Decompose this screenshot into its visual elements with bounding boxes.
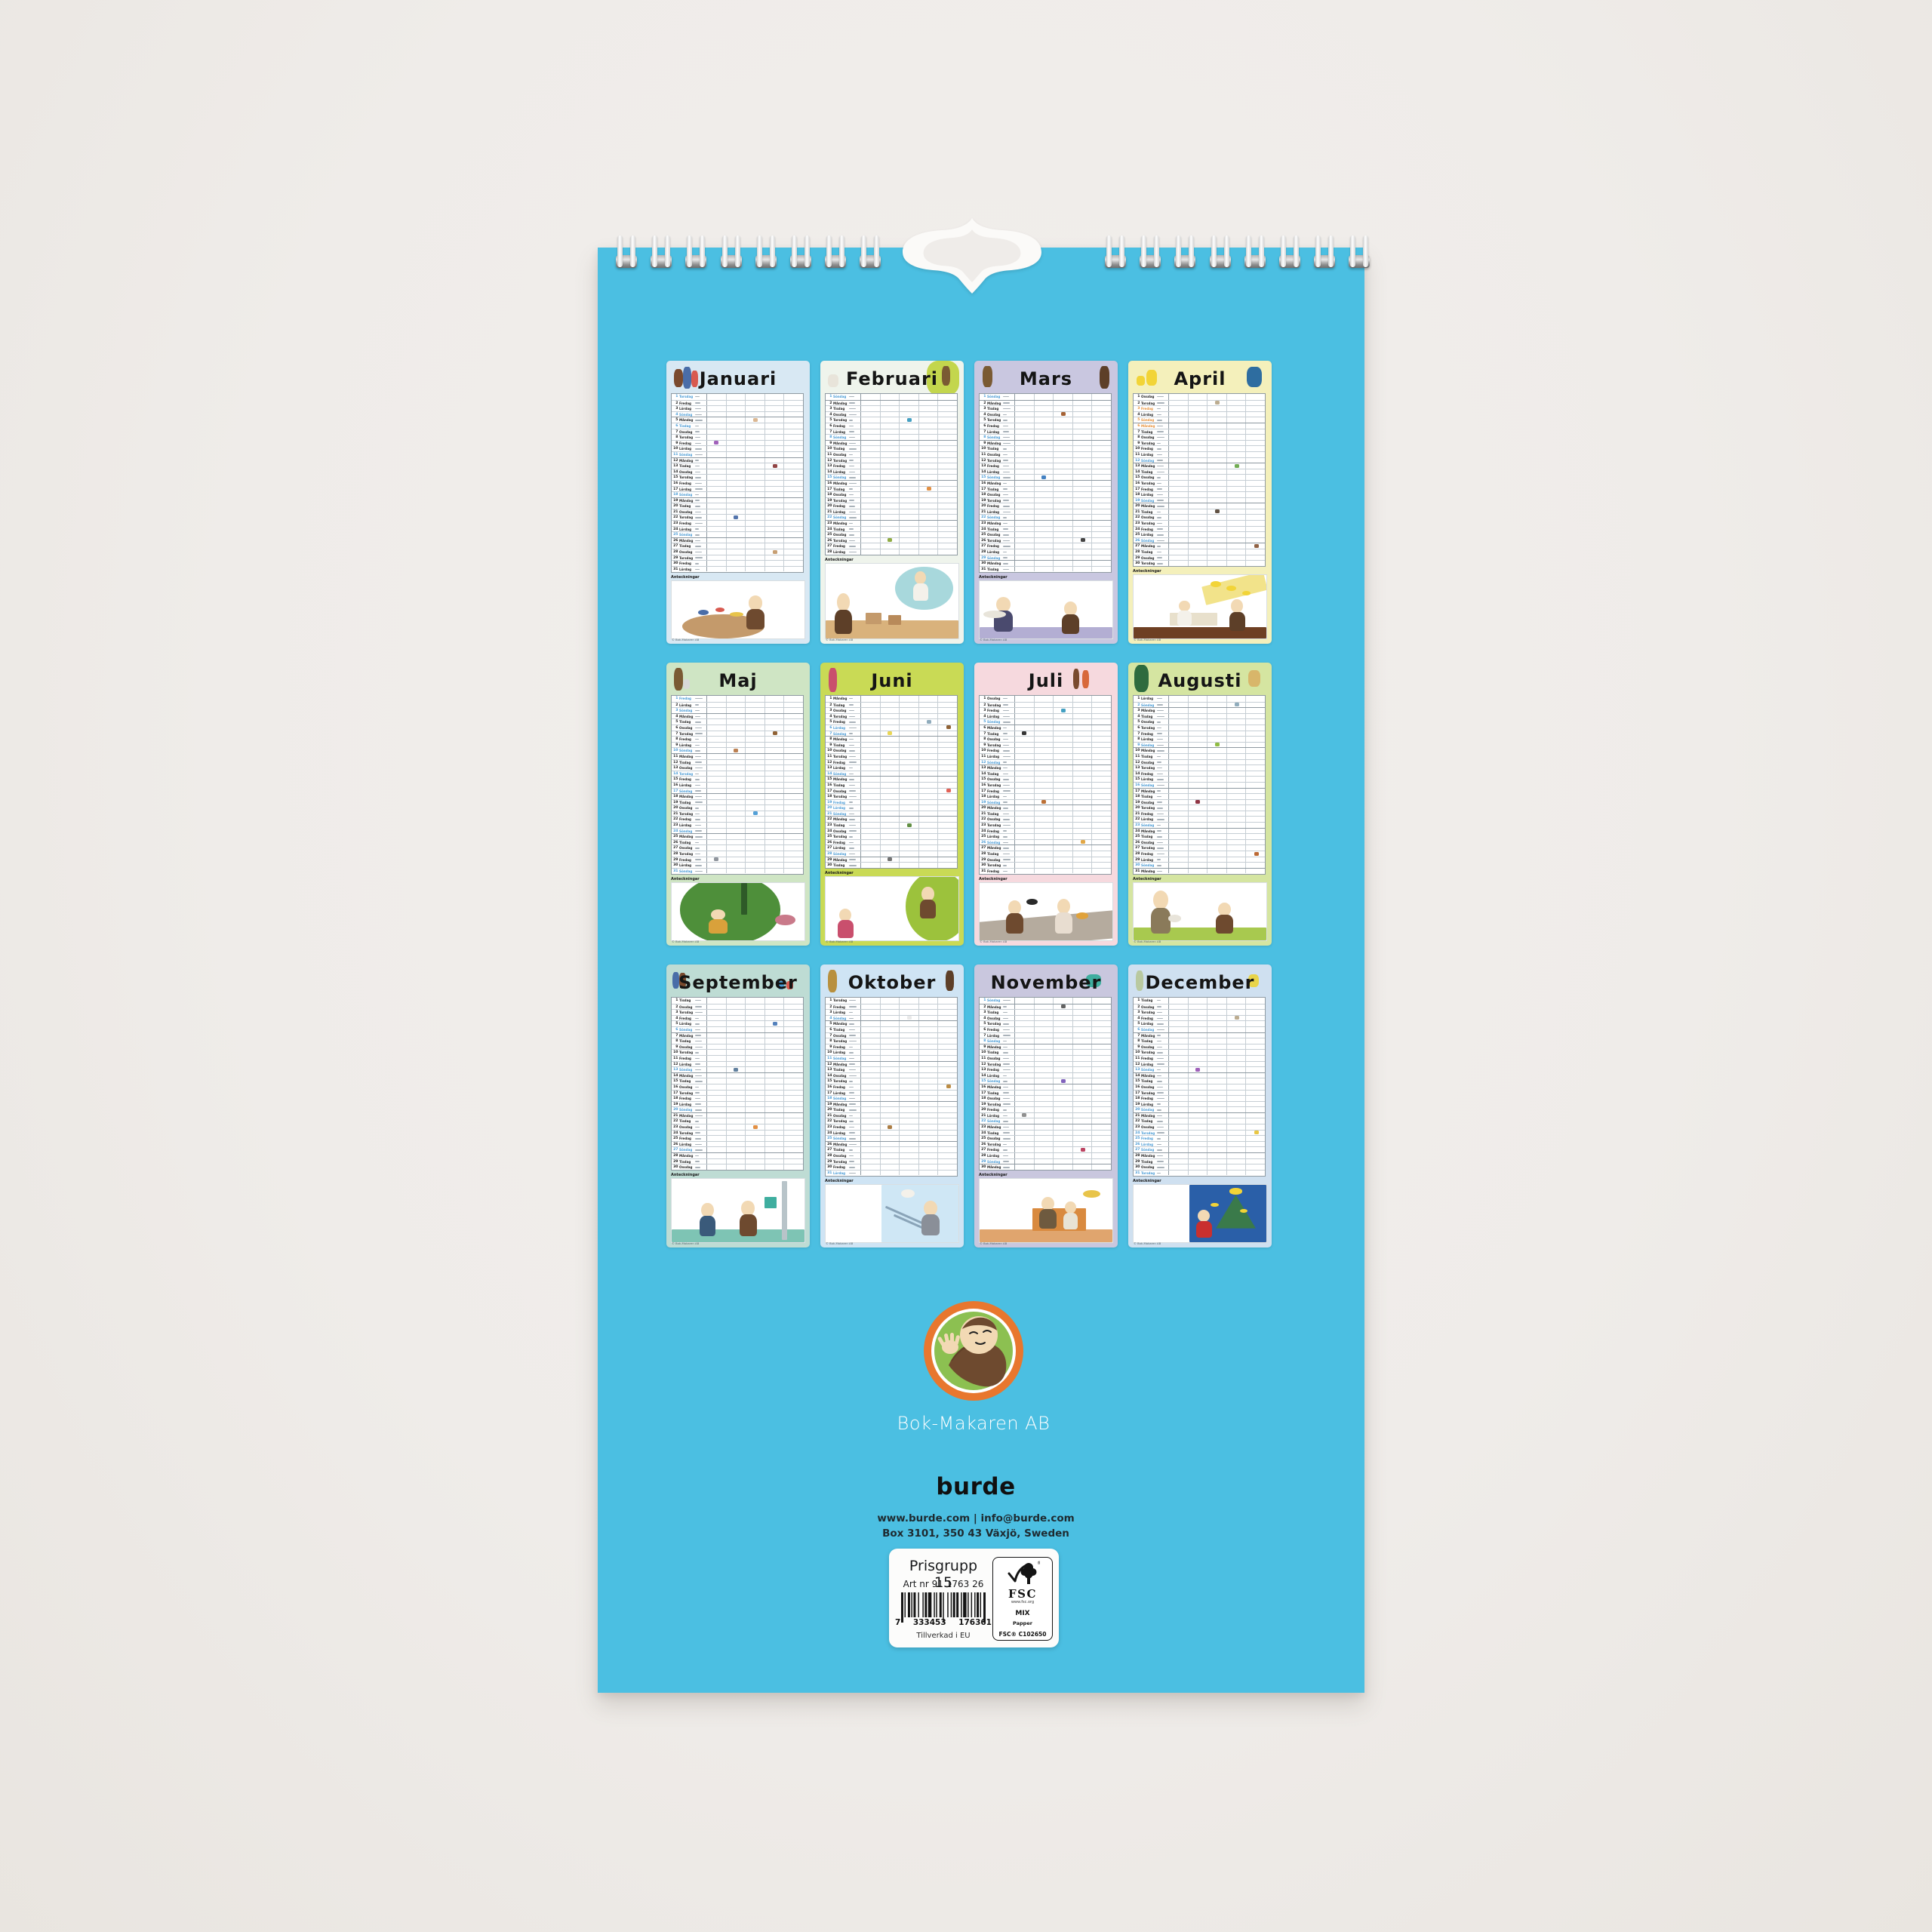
nameday-placeholder — [848, 777, 860, 782]
grid-cell — [1207, 1050, 1226, 1055]
grid-cell — [1188, 817, 1207, 822]
grid-cell — [1034, 851, 1054, 857]
nameday-placeholder — [848, 714, 860, 719]
nameday-text-blur — [695, 739, 699, 740]
nameday-text-blur — [1003, 1167, 1010, 1168]
grid-cell — [1226, 805, 1246, 811]
day-name: Söndag — [679, 452, 694, 457]
grid-cell — [899, 800, 918, 805]
grid-cell — [1168, 731, 1188, 737]
day-name: Torsdag — [1141, 845, 1156, 851]
nameday-text-blur — [1003, 534, 1009, 536]
grid-cell — [783, 737, 803, 742]
grid-cell — [726, 760, 746, 765]
grid-cell — [1226, 446, 1246, 451]
grid-cell — [1072, 1153, 1092, 1158]
grid-cell — [1091, 794, 1111, 799]
day-name: Torsdag — [1141, 401, 1156, 406]
day-name: Onsdag — [1141, 840, 1156, 845]
grid-cell — [1072, 760, 1092, 765]
day-row: 16Fredag — [826, 1084, 957, 1090]
day-name: Lördag — [833, 765, 848, 771]
barcode-digit-lead: 7 — [895, 1618, 900, 1627]
grid-cell — [1245, 840, 1265, 845]
grid-cell — [1053, 487, 1072, 492]
grid-cell — [1168, 549, 1188, 555]
grid-cell — [1168, 503, 1188, 509]
day-row: 9Onsdag — [672, 1044, 803, 1050]
nameday-placeholder — [848, 1038, 860, 1044]
day-name: Måndag — [679, 498, 694, 503]
grid-cell — [706, 845, 726, 851]
grid-cell — [1207, 417, 1226, 423]
nameday-text-blur — [849, 1155, 854, 1157]
grid-sticker — [927, 720, 931, 724]
day-row: 18Lördag — [980, 793, 1111, 799]
day-number: 18 — [826, 492, 833, 497]
nameday-text-blur — [1003, 779, 1009, 780]
grid-cell — [745, 714, 764, 719]
nameday-text-blur — [849, 808, 854, 809]
nameday-placeholder — [848, 458, 860, 463]
grid-cell — [783, 498, 803, 503]
nameday-placeholder — [1002, 1102, 1014, 1107]
grid-cell — [918, 441, 938, 446]
day-name: Fredag — [833, 760, 848, 765]
nameday-text-blur — [1157, 819, 1164, 820]
nameday-text-blur — [695, 779, 700, 780]
grid-cell — [860, 765, 880, 771]
grid-cell — [1168, 1171, 1188, 1176]
day-name: Lördag — [833, 845, 848, 851]
day-row: 22Måndag — [826, 816, 957, 822]
binding-loop — [1313, 235, 1336, 273]
nameday-placeholder — [848, 1027, 860, 1032]
nameday-placeholder — [1156, 805, 1168, 811]
grid-cell — [1226, 561, 1246, 566]
day-name: Söndag — [1141, 743, 1156, 748]
grid-cell — [880, 423, 900, 429]
nameday-placeholder — [1002, 538, 1014, 543]
day-name: Onsdag — [833, 1153, 848, 1158]
grid-cell — [937, 1153, 957, 1158]
nameday-placeholder — [1002, 555, 1014, 561]
day-row: 7Måndag — [1134, 1032, 1265, 1038]
day-name: Lördag — [679, 743, 694, 748]
day-row: 4Onsdag — [980, 411, 1111, 417]
binding-wire — [1281, 235, 1286, 267]
day-number: 23 — [826, 823, 833, 828]
grid-cell — [1072, 800, 1092, 805]
grid-cell — [1226, 834, 1246, 839]
grid-cell — [1034, 406, 1054, 411]
grid-cell — [783, 521, 803, 526]
day-number: 22 — [672, 817, 679, 822]
nameday-placeholder — [1002, 423, 1014, 429]
day-name: Torsdag — [833, 538, 848, 543]
day-name: Måndag — [1141, 748, 1156, 753]
day-name: Måndag — [679, 794, 694, 799]
grid-cell — [764, 567, 784, 572]
nameday-placeholder — [848, 708, 860, 713]
day-number: 19 — [672, 800, 679, 805]
grid-cell — [860, 538, 880, 543]
day-row: 19Söndag — [1134, 497, 1265, 503]
grid-cell — [937, 435, 957, 440]
day-number: 3 — [826, 708, 833, 713]
nameday-placeholder — [694, 1107, 706, 1112]
grid-cell — [1053, 527, 1072, 532]
grid-cell — [1226, 435, 1246, 440]
day-row: 4Lördag — [980, 713, 1111, 719]
grid-cell — [918, 503, 938, 509]
nameday-text-blur — [1003, 528, 1008, 530]
day-number: 12 — [980, 1062, 987, 1067]
nameday-text-blur — [1157, 431, 1164, 432]
grid-cell — [1053, 1010, 1072, 1015]
day-row: 29Tisdag — [672, 1158, 803, 1164]
grid-cell — [918, 1159, 938, 1164]
day-name: Torsdag — [987, 1142, 1002, 1147]
month-title: April — [1133, 365, 1267, 393]
nameday-text-blur — [1003, 1012, 1008, 1014]
nameday-placeholder — [1156, 1084, 1168, 1090]
day-name: Onsdag — [833, 492, 848, 497]
grid-cell — [764, 527, 784, 532]
day-number: 1 — [672, 998, 679, 1004]
grid-cell — [1034, 1010, 1054, 1015]
grid-cell — [745, 703, 764, 708]
grid-cell — [1188, 1050, 1207, 1055]
day-row: 19Torsdag — [980, 497, 1111, 503]
nameday-placeholder — [1002, 492, 1014, 497]
nameday-placeholder — [1002, 521, 1014, 526]
grid-cell — [783, 429, 803, 435]
grid-cell — [1091, 1096, 1111, 1101]
day-row: 29Torsdag — [826, 1158, 957, 1164]
grid-cell — [937, 1164, 957, 1170]
grid-cell — [1034, 1027, 1054, 1032]
day-row: 20Måndag — [980, 804, 1111, 811]
grid-cell — [1226, 743, 1246, 748]
nameday-text-blur — [695, 466, 700, 467]
grid-cell — [726, 521, 746, 526]
grid-cell — [783, 487, 803, 492]
grid-cell — [1072, 1084, 1092, 1090]
grid-cell — [860, 1044, 880, 1050]
day-row: 23Torsdag — [980, 822, 1111, 828]
day-row: 11Söndag — [826, 1055, 957, 1061]
grid-cell — [726, 771, 746, 777]
nameday-text-blur — [695, 528, 699, 530]
day-name: Torsdag — [833, 1038, 848, 1044]
grid-cell — [764, 771, 784, 777]
grid-cell — [1034, 521, 1054, 526]
nameday-placeholder — [694, 1078, 706, 1084]
nameday-placeholder — [1002, 532, 1014, 537]
grid-cell — [860, 1136, 880, 1141]
grid-cell — [1014, 417, 1034, 423]
day-number: 8 — [980, 1038, 987, 1044]
day-row: 5Söndag — [1134, 417, 1265, 423]
day-number: 30 — [672, 561, 679, 566]
grid-cell — [1091, 429, 1111, 435]
notes-label: Anteckningar — [979, 575, 1113, 580]
day-row: 17Fredag — [980, 788, 1111, 794]
nameday-placeholder — [848, 481, 860, 486]
grid-cell — [726, 1131, 746, 1136]
grid-cell — [1188, 737, 1207, 742]
day-name: Måndag — [1141, 829, 1156, 834]
grid-cell — [880, 1164, 900, 1170]
grid-cell — [745, 492, 764, 497]
nameday-placeholder — [1002, 1062, 1014, 1067]
day-number: 29 — [672, 1159, 679, 1164]
grid-cell — [1207, 1159, 1226, 1164]
day-row: 28Lördag — [980, 1152, 1111, 1158]
day-name: Söndag — [987, 1038, 1002, 1044]
nameday-placeholder — [848, 805, 860, 811]
grid-cell — [1188, 412, 1207, 417]
grid-cell — [783, 1124, 803, 1130]
grid-cell — [1053, 1124, 1072, 1130]
grid-cell — [764, 515, 784, 520]
grid-cell — [880, 696, 900, 702]
grid-cell — [1072, 857, 1092, 863]
grid-cell — [745, 708, 764, 713]
grid-cell — [899, 829, 918, 834]
grid-cell — [1091, 463, 1111, 469]
day-name: Måndag — [987, 1124, 1002, 1130]
day-row: 23Onsdag — [1134, 1124, 1265, 1130]
grid-cell — [706, 840, 726, 845]
grid-cell — [764, 1113, 784, 1118]
nameday-text-blur — [849, 454, 853, 456]
grid-cell — [918, 463, 938, 469]
nameday-text-blur — [849, 420, 853, 421]
nameday-text-blur — [695, 825, 701, 826]
grid-cell — [1014, 567, 1034, 572]
grid-cell — [1245, 475, 1265, 480]
day-row: 26Måndag — [826, 1141, 957, 1147]
nameday-placeholder — [848, 998, 860, 1004]
grid-cell — [764, 1096, 784, 1101]
grid-cell — [1226, 481, 1246, 486]
grid-cell — [937, 1078, 957, 1084]
grid-cell — [1072, 1050, 1092, 1055]
day-number: 24 — [826, 829, 833, 834]
grid-cell — [745, 412, 764, 417]
nameday-text-blur — [695, 710, 700, 712]
day-row: 15Torsdag — [826, 1078, 957, 1084]
day-row: 4Onsdag — [826, 411, 957, 417]
grid-cell — [1072, 417, 1092, 423]
day-row: 27Söndag — [672, 1146, 803, 1152]
day-name: Måndag — [987, 805, 1002, 811]
day-number: 21 — [826, 1113, 833, 1118]
grid-cell — [1226, 783, 1246, 788]
grid-cell — [764, 521, 784, 526]
grid-cell — [899, 696, 918, 702]
binding-loop — [1209, 235, 1232, 273]
nameday-placeholder — [1156, 561, 1168, 566]
grid-cell — [937, 851, 957, 857]
grid-cell — [706, 1131, 726, 1136]
day-name: Måndag — [1141, 503, 1156, 509]
nameday-text-blur — [695, 1115, 703, 1117]
grid-cell — [1168, 1027, 1188, 1032]
day-name: Torsdag — [1141, 725, 1156, 731]
day-row: 2Måndag — [980, 400, 1111, 406]
day-row: 5Torsdag — [980, 1020, 1111, 1026]
grid-cell — [783, 714, 803, 719]
grid-cell — [726, 532, 746, 537]
nameday-text-blur — [695, 414, 702, 416]
day-number: 24 — [826, 1131, 833, 1136]
nameday-text-blur — [695, 1098, 700, 1100]
grid-cell — [1034, 719, 1054, 724]
fsc-reg-mark: ® — [1037, 1561, 1040, 1566]
grid-cell — [860, 1153, 880, 1158]
grid-cell — [1034, 463, 1054, 469]
grid-cell — [1053, 394, 1072, 400]
day-name: Tisdag — [1141, 1038, 1156, 1044]
day-number: 6 — [1134, 423, 1141, 429]
nameday-text-blur — [695, 1138, 701, 1140]
grid-cell — [899, 469, 918, 475]
grid-cell — [1226, 811, 1246, 817]
grid-cell — [1207, 771, 1226, 777]
grid-cell — [1014, 737, 1034, 742]
grid-cell — [1034, 771, 1054, 777]
day-row: 5Måndag — [672, 417, 803, 423]
nameday-placeholder — [1156, 429, 1168, 435]
grid-cell — [1226, 1153, 1246, 1158]
grid-cell — [726, 1096, 746, 1101]
grid-cell — [899, 481, 918, 486]
grid-cell — [1188, 1118, 1207, 1124]
day-name: Tisdag — [1141, 429, 1156, 435]
nameday-placeholder — [848, 1159, 860, 1164]
day-name: Måndag — [1141, 463, 1156, 469]
grid-cell — [764, 498, 784, 503]
nameday-text-blur — [1157, 420, 1162, 421]
day-name: Lördag — [987, 469, 1002, 475]
grid-cell — [1091, 481, 1111, 486]
day-number: 15 — [1134, 777, 1141, 782]
grid-cell — [918, 834, 938, 839]
grid-cell — [880, 1067, 900, 1072]
month-copyright: © Bok-Makaren AB — [1134, 638, 1161, 641]
day-number: 29 — [826, 857, 833, 863]
day-name: Torsdag — [833, 714, 848, 719]
grid-cell — [726, 1091, 746, 1096]
nameday-placeholder — [1002, 794, 1014, 799]
grid-cell — [880, 998, 900, 1004]
grid-cell — [764, 777, 784, 782]
month-grid: 1Söndag2Måndag3Tisdag4Onsdag5Torsdag6Fre… — [979, 393, 1112, 573]
grid-cell — [1245, 1164, 1265, 1170]
day-row: 15Söndag — [826, 474, 957, 480]
day-row: 1Söndag — [826, 394, 957, 400]
grid-cell — [726, 805, 746, 811]
grid-cell — [1207, 703, 1226, 708]
day-row: 2Torsdag — [1134, 400, 1265, 406]
grid-cell — [899, 406, 918, 411]
day-number: 6 — [980, 725, 987, 731]
nameday-text-blur — [1157, 865, 1161, 866]
grid-cell — [937, 503, 957, 509]
grid-cell — [1053, 532, 1072, 537]
grid-cell — [1034, 481, 1054, 486]
day-name: Lördag — [679, 1102, 694, 1107]
grid-cell — [1168, 429, 1188, 435]
grid-cell — [706, 748, 726, 753]
grid-cell — [937, 394, 957, 400]
grid-cell — [745, 1067, 764, 1072]
nameday-text-blur — [1157, 437, 1164, 438]
nameday-text-blur — [849, 1029, 855, 1031]
day-number: 6 — [826, 725, 833, 731]
grid-cell — [937, 406, 957, 411]
grid-cell — [745, 851, 764, 857]
nameday-placeholder — [1156, 1107, 1168, 1112]
month-copyright: © Bok-Makaren AB — [672, 638, 699, 641]
day-row: 10Måndag — [1134, 747, 1265, 753]
day-row: 7Onsdag — [826, 1032, 957, 1038]
grid-cell — [937, 458, 957, 463]
day-row: 5Måndag — [826, 1020, 957, 1026]
nameday-text-blur — [849, 1149, 853, 1151]
day-number: 14 — [672, 1073, 679, 1078]
grid-cell — [1207, 527, 1226, 532]
day-number: 19 — [672, 1102, 679, 1107]
nameday-text-blur — [695, 1058, 700, 1060]
grid-cell — [1072, 1142, 1092, 1147]
day-name: Söndag — [987, 1118, 1002, 1124]
grid-cell — [1072, 696, 1092, 702]
grid-cell — [1226, 708, 1246, 713]
day-row: 2Fredag — [672, 400, 803, 406]
grid-cell — [726, 754, 746, 759]
grid-cell — [918, 1038, 938, 1044]
grid-sticker — [1235, 464, 1239, 468]
nameday-placeholder — [848, 765, 860, 771]
day-number: 29 — [980, 555, 987, 561]
grid-cell — [880, 1136, 900, 1141]
grid-cell — [1226, 714, 1246, 719]
nameday-placeholder — [1156, 1159, 1168, 1164]
month-header: Februari — [825, 365, 959, 393]
day-name: Lördag — [1141, 817, 1156, 822]
nameday-text-blur — [1003, 1109, 1007, 1111]
nameday-text-blur — [849, 1161, 854, 1162]
day-name: Onsdag — [1141, 1004, 1156, 1010]
grid-cell — [726, 1078, 746, 1084]
grid-cell — [1245, 800, 1265, 805]
notes-figure — [835, 593, 852, 634]
nameday-placeholder — [848, 446, 860, 451]
day-row: 7Torsdag — [672, 731, 803, 737]
grid-cell — [1053, 794, 1072, 799]
nameday-text-blur — [1157, 871, 1162, 872]
nameday-text-blur — [849, 408, 856, 410]
day-row: 30Fredag — [826, 1164, 957, 1170]
grid-cell — [1188, 1044, 1207, 1050]
notes-figure — [1196, 1210, 1212, 1238]
nameday-text-blur — [1003, 448, 1007, 450]
grid-cell — [764, 754, 784, 759]
